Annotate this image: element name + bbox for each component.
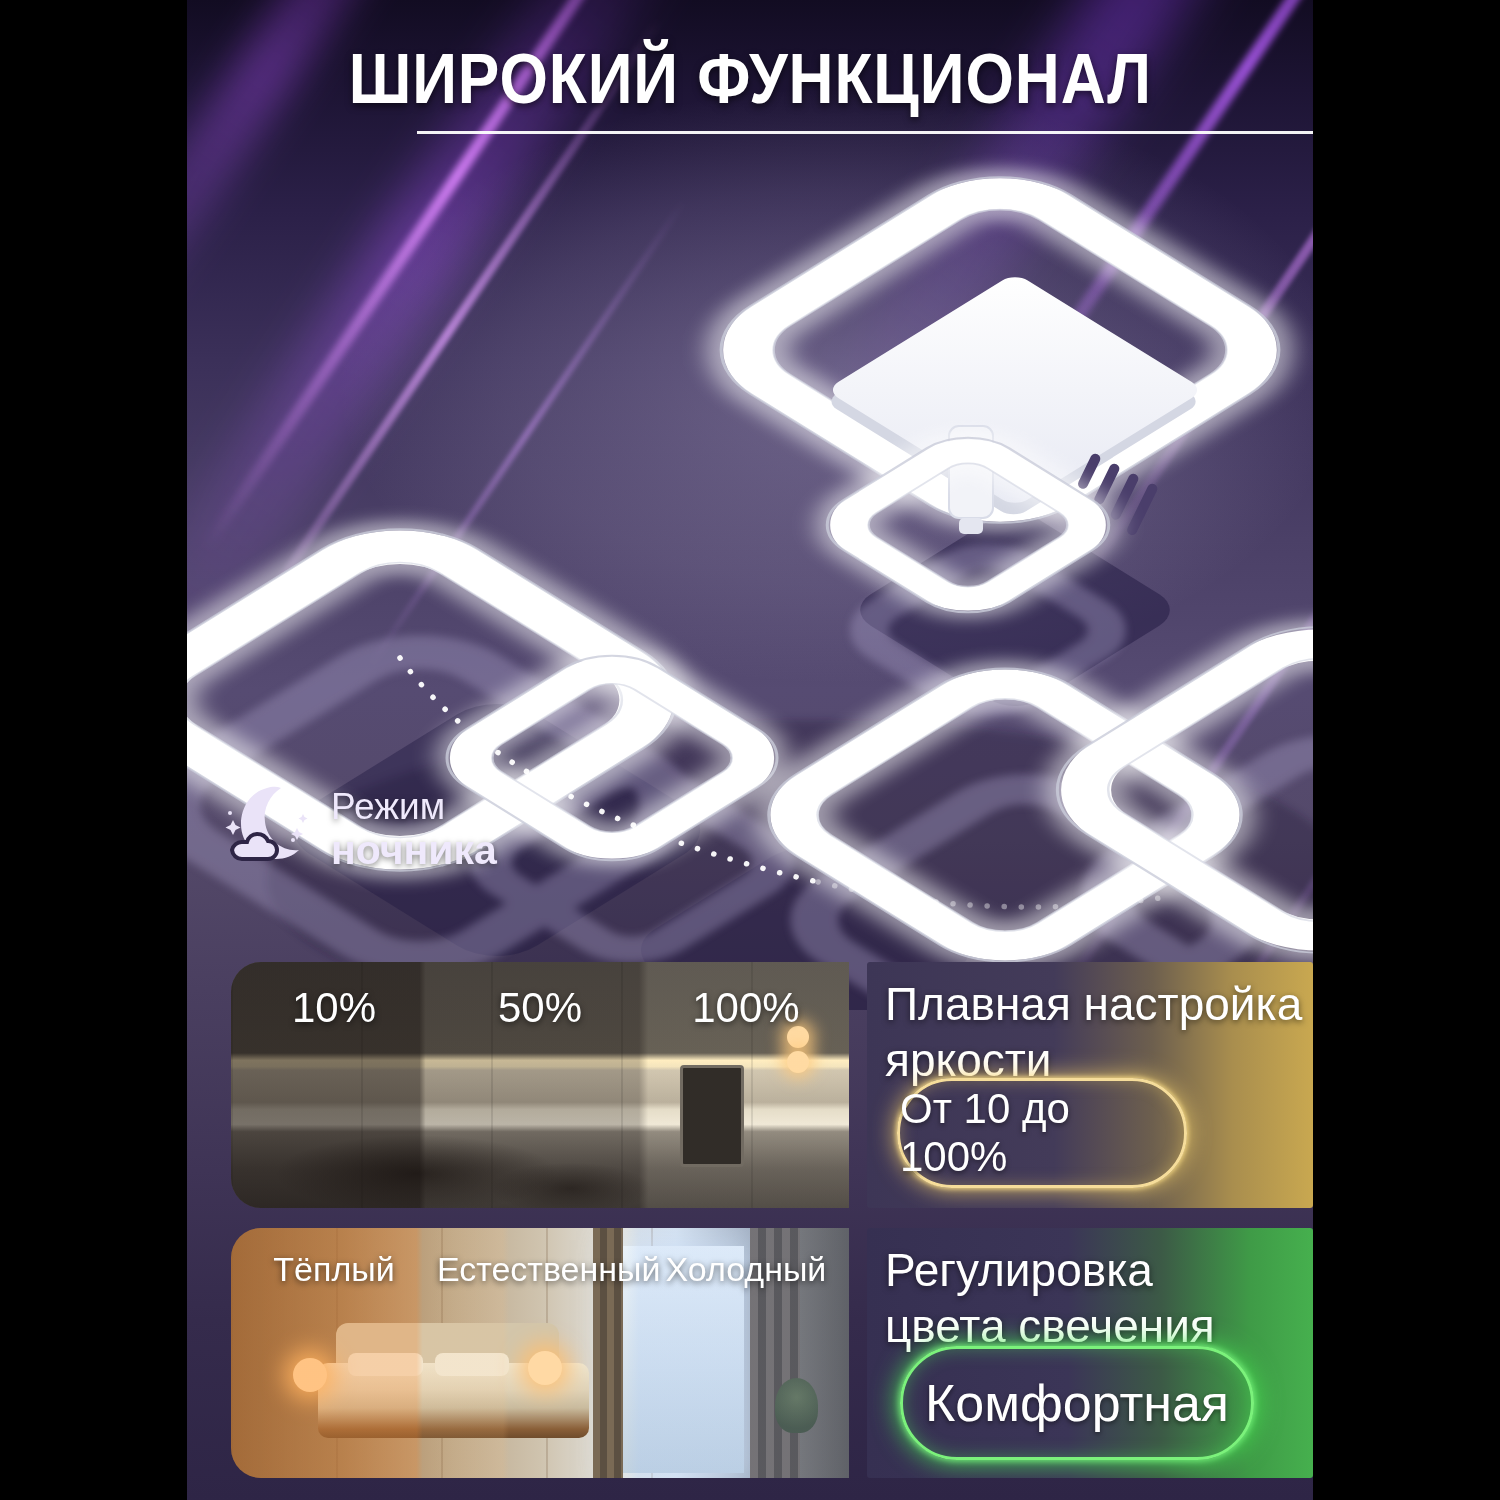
feature-row-color-temperature: Тёплый Естественный Холодный Регулировка…	[231, 1228, 1313, 1478]
temperature-label-cold: Холодный	[643, 1250, 849, 1289]
night-mode-callout: Режим ночника	[223, 780, 497, 880]
temperature-label-warm: Тёплый	[231, 1250, 437, 1289]
brightness-panel-title: Плавная настройка яркости	[885, 976, 1313, 1088]
brightness-range-badge: От 10 до 100%	[897, 1078, 1187, 1188]
temperature-label-natural: Естественный	[437, 1250, 643, 1289]
night-mode-label-line2: ночника	[331, 828, 497, 874]
page-title: ШИРОКИЙ ФУНКЦИОНАЛ	[187, 44, 1313, 114]
brightness-label-100: 100%	[643, 984, 849, 1032]
product-card: ШИРОКИЙ ФУНКЦИОНАЛ	[187, 0, 1313, 1500]
brightness-label-50: 50%	[437, 984, 643, 1032]
feature-row-brightness: 10% 50% 100% Плавная настройка яркости О…	[231, 962, 1313, 1208]
brightness-label-10: 10%	[231, 984, 437, 1032]
night-mode-label-line1: Режим	[331, 786, 497, 827]
night-mode-label: Режим ночника	[331, 786, 497, 873]
canvas: { "header": { "title": "ШИРОКИЙ ФУНКЦИОН…	[0, 0, 1500, 1500]
temperature-labels: Тёплый Естественный Холодный	[231, 1250, 849, 1289]
brightness-panel: Плавная настройка яркости От 10 до 100%	[867, 962, 1313, 1208]
moon-cloud-stars-icon	[223, 780, 317, 880]
color-temperature-panel-title: Регулировка цвета свечения	[885, 1242, 1313, 1354]
brightness-level-labels: 10% 50% 100%	[231, 984, 849, 1032]
brightness-title-line1: Плавная настройка	[885, 976, 1313, 1032]
color-title-line1: Регулировка	[885, 1242, 1313, 1298]
color-temperature-badge: Комфортная	[900, 1346, 1254, 1460]
color-temperature-panel: Регулировка цвета свечения Комфортная	[867, 1228, 1313, 1478]
bedroom-photo: Тёплый Естественный Холодный	[231, 1228, 849, 1478]
kitchen-photo: 10% 50% 100%	[231, 962, 849, 1208]
